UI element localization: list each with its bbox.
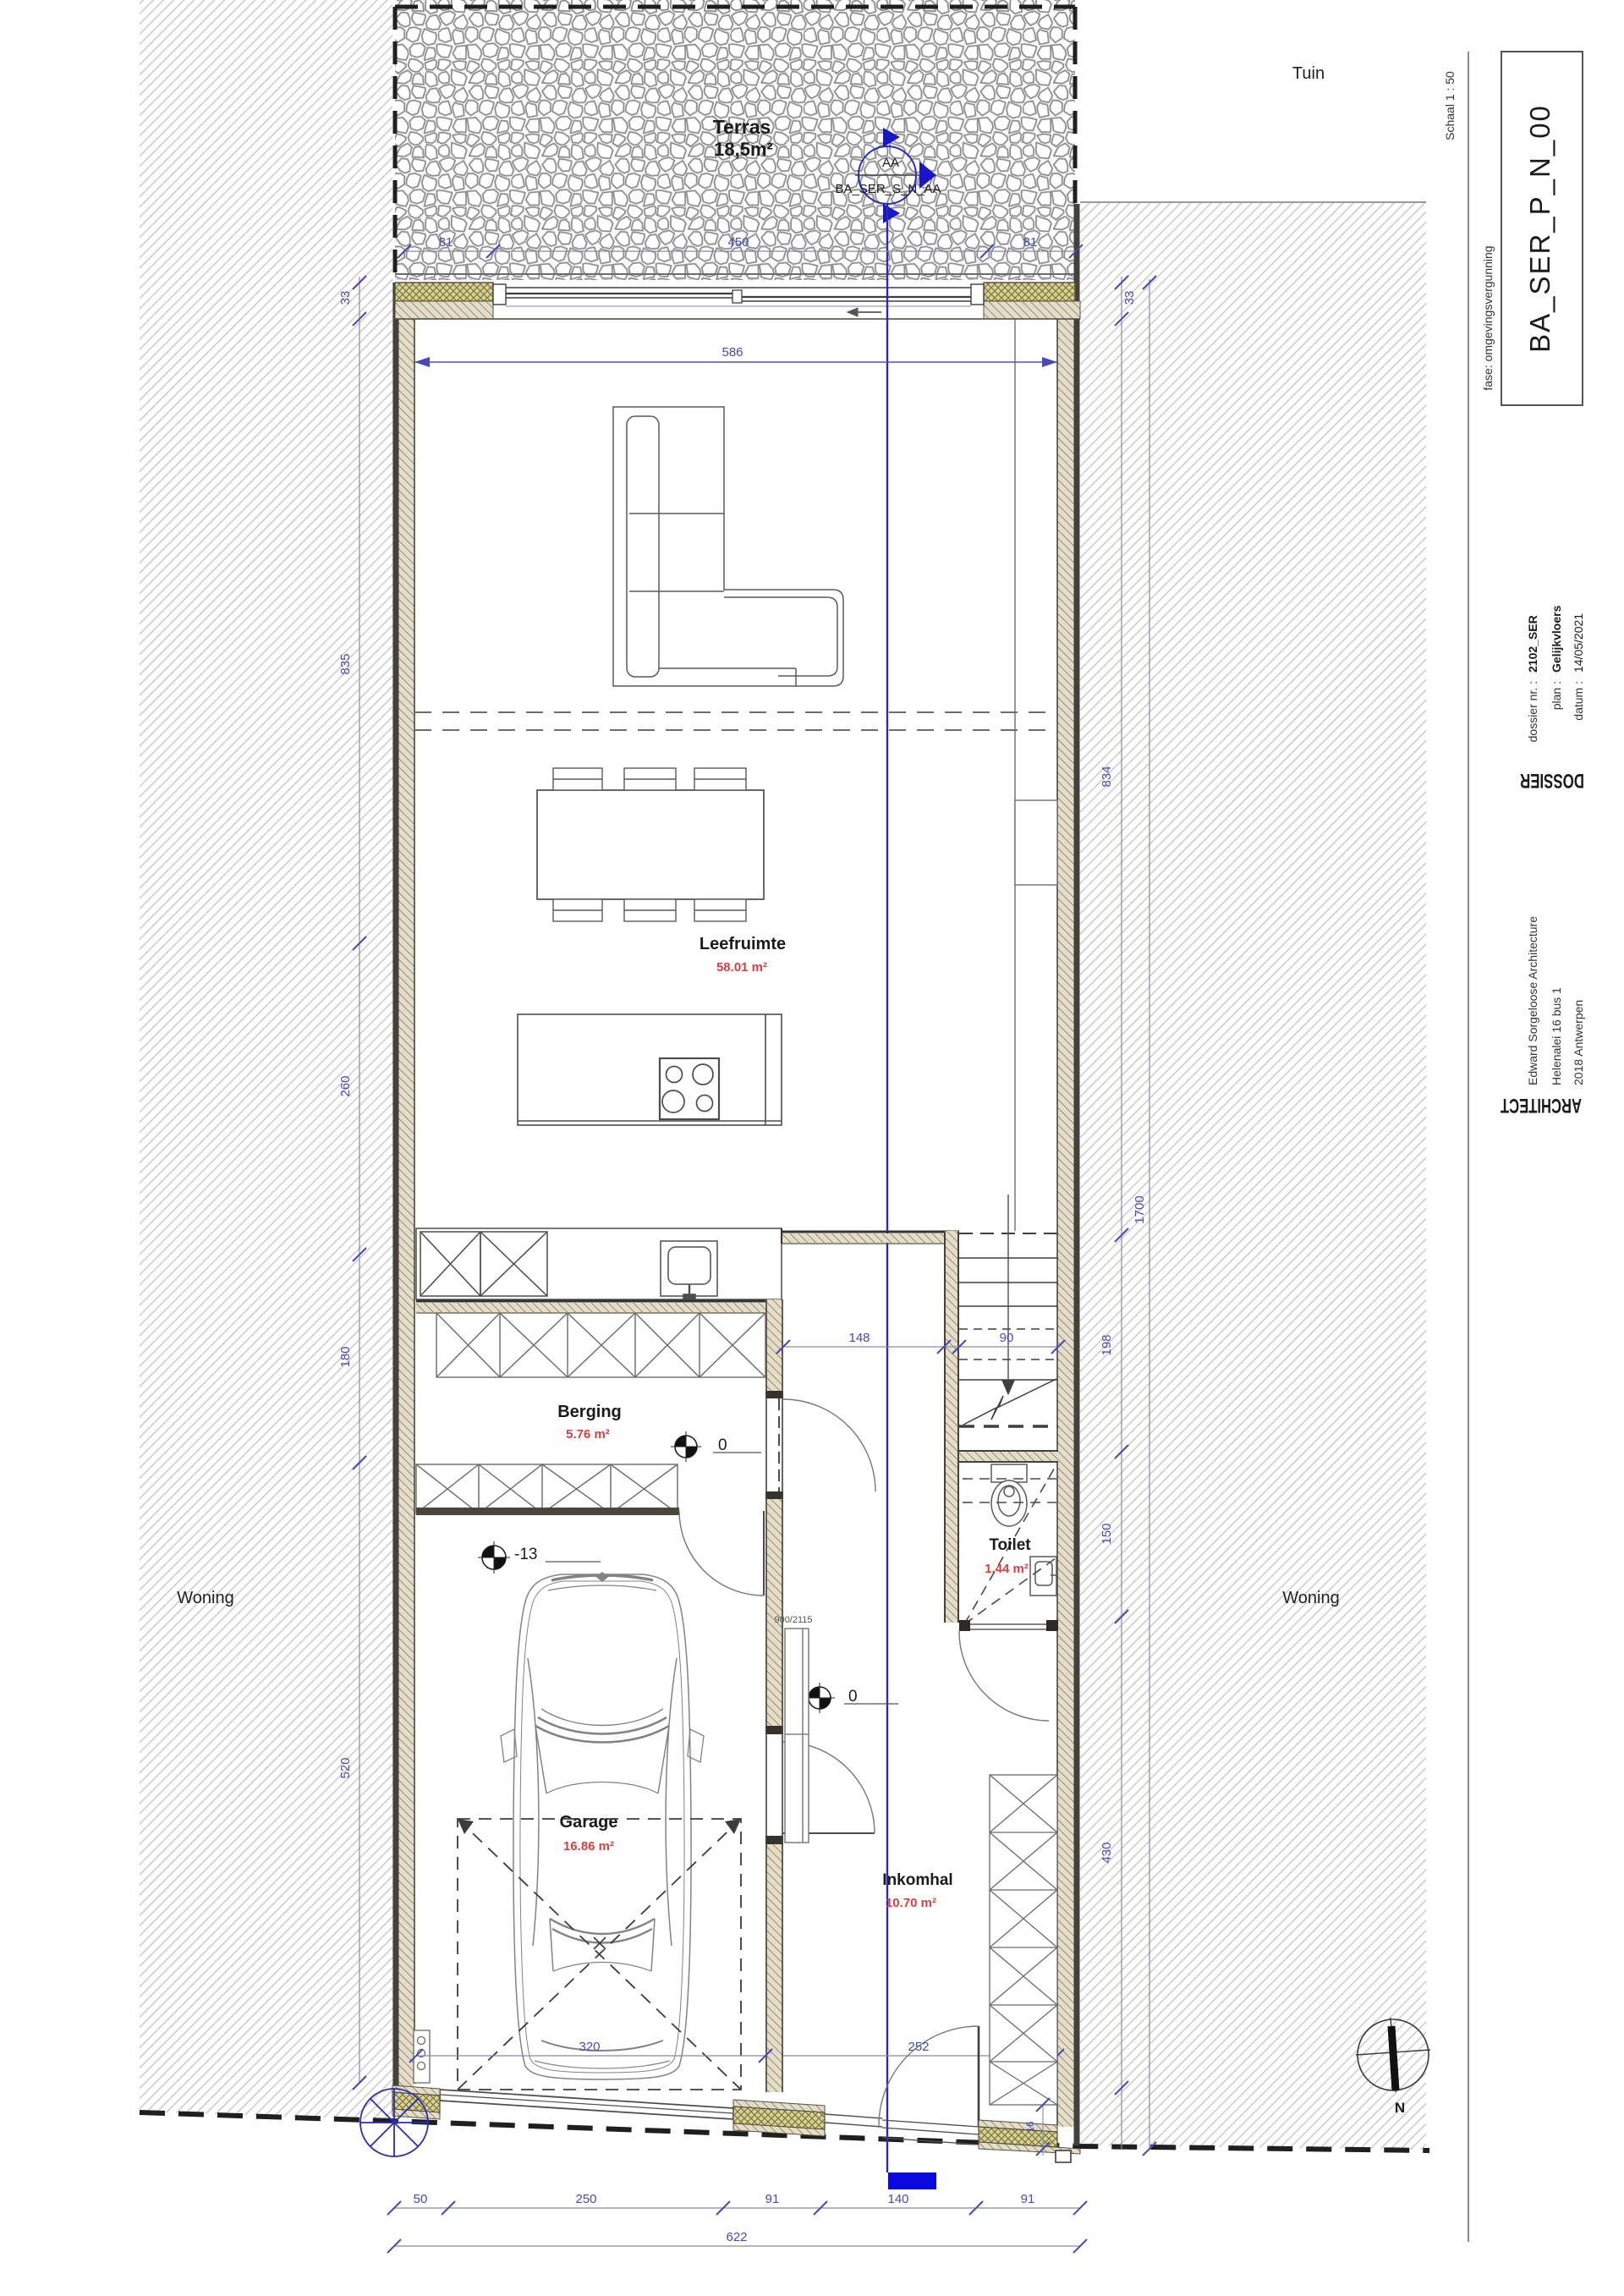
svg-text:2102_SER: 2102_SER (1526, 615, 1539, 673)
svg-text:250: 250 (575, 2192, 596, 2206)
svg-text:450: 450 (727, 235, 749, 250)
svg-text:Berging: Berging (557, 1403, 622, 1421)
svg-text:0: 0 (718, 1436, 727, 1454)
svg-text:Woning: Woning (177, 1589, 233, 1607)
svg-text:AA: AA (882, 156, 899, 170)
svg-text:1700: 1700 (1133, 1195, 1147, 1223)
svg-text:5.76 m²: 5.76 m² (566, 1427, 610, 1442)
svg-text:150: 150 (1100, 1523, 1114, 1544)
svg-text:835: 835 (338, 653, 353, 674)
svg-text:50: 50 (414, 2192, 428, 2206)
svg-text:Leefruimte: Leefruimte (700, 935, 786, 953)
svg-text:fase: omgevingsvergunning: fase: omgevingsvergunning (1481, 245, 1495, 390)
svg-text:Garage: Garage (560, 1813, 618, 1832)
svg-text:ARCHITECT: ARCHITECT (1501, 1094, 1582, 1117)
svg-text:91: 91 (765, 2192, 780, 2206)
svg-text:Tuin: Tuin (1292, 64, 1325, 83)
svg-text:N: N (1395, 2100, 1405, 2116)
svg-text:834: 834 (1100, 766, 1114, 787)
svg-text:33: 33 (1122, 291, 1137, 305)
svg-text:90: 90 (1000, 1331, 1014, 1345)
svg-text:900/2115: 900/2115 (774, 1615, 812, 1625)
svg-text:Woning: Woning (1282, 1589, 1339, 1607)
svg-text:datum :: datum : (1572, 681, 1585, 721)
svg-text:Inkomhal: Inkomhal (882, 1871, 952, 1889)
svg-text:16: 16 (1024, 2121, 1036, 2133)
svg-text:18,5m²: 18,5m² (714, 139, 773, 160)
svg-text:1.44 m²: 1.44 m² (985, 1562, 1029, 1576)
svg-text:Edward Sorgeloose Architecture: Edward Sorgeloose Architecture (1526, 916, 1539, 1085)
svg-text:16.86 m²: 16.86 m² (563, 1839, 614, 1854)
svg-text:81: 81 (439, 235, 453, 250)
svg-text:430: 430 (1100, 1842, 1114, 1863)
svg-text:Schaal 1 : 50: Schaal 1 : 50 (1443, 71, 1457, 140)
svg-text:0: 0 (848, 1688, 858, 1706)
svg-text:586: 586 (721, 345, 743, 360)
svg-text:91: 91 (1021, 2192, 1035, 2206)
svg-text:BA_SER_S_N_AA: BA_SER_S_N_AA (835, 182, 941, 196)
svg-text:58.01 m²: 58.01 m² (716, 960, 767, 975)
svg-text:180: 180 (338, 1346, 353, 1367)
svg-text:33: 33 (338, 291, 353, 305)
svg-text:10.70 m²: 10.70 m² (886, 1896, 936, 1910)
svg-text:DOSSIER: DOSSIER (1520, 769, 1584, 792)
svg-text:198: 198 (1100, 1334, 1114, 1355)
svg-text:dossier nr. :: dossier nr. : (1526, 681, 1539, 742)
svg-text:Toilet: Toilet (989, 1536, 1031, 1554)
svg-text:260: 260 (338, 1075, 353, 1096)
svg-text:Terras: Terras (713, 116, 771, 138)
svg-text:622: 622 (726, 2230, 747, 2244)
svg-text:BA_SER_P_N_00: BA_SER_P_N_00 (1524, 104, 1555, 353)
svg-text:520: 520 (338, 1757, 353, 1778)
svg-text:320: 320 (579, 2040, 600, 2054)
svg-text:Gelijkvloers: Gelijkvloers (1550, 605, 1563, 673)
svg-text:plan :: plan : (1550, 681, 1563, 710)
svg-text:-13: -13 (514, 1546, 537, 1563)
svg-text:148: 148 (848, 1331, 870, 1345)
svg-text:2018 Antwerpen: 2018 Antwerpen (1572, 1000, 1585, 1085)
svg-text:140: 140 (887, 2192, 908, 2206)
svg-text:81: 81 (1023, 235, 1038, 250)
svg-text:Helenalei 16 bus 1: Helenalei 16 bus 1 (1550, 987, 1563, 1085)
svg-text:14/05/2021: 14/05/2021 (1572, 613, 1585, 673)
